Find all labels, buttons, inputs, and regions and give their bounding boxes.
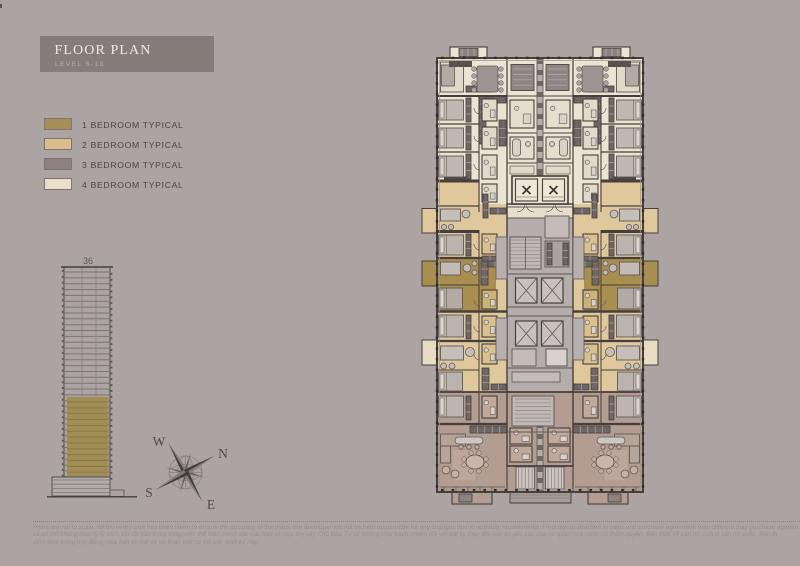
svg-text:36: 36: [83, 256, 93, 266]
svg-text:E: E: [207, 497, 215, 512]
svg-text:S: S: [145, 485, 153, 500]
svg-text:N: N: [218, 446, 228, 461]
svg-text:W: W: [153, 434, 166, 449]
